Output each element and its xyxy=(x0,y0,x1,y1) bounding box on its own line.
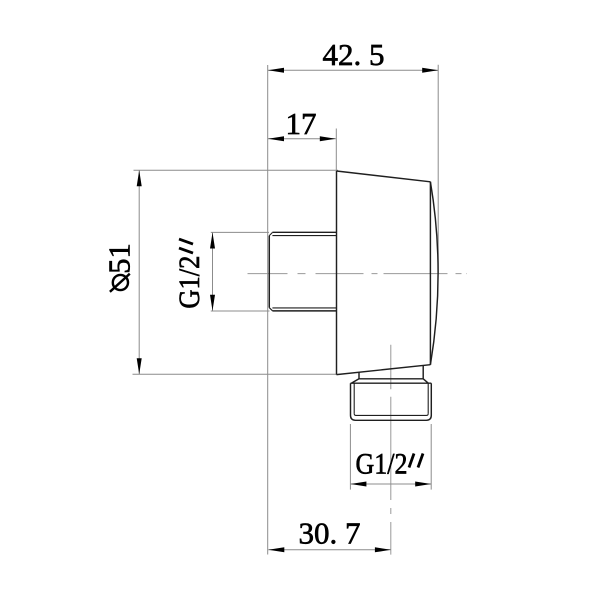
svg-text:51: 51 xyxy=(103,243,137,274)
svg-text:G1/2: G1/2 xyxy=(173,256,206,309)
svg-text:42. 5: 42. 5 xyxy=(323,37,385,72)
svg-text:30. 7: 30. 7 xyxy=(299,516,361,551)
svg-text:G1/2: G1/2 xyxy=(356,448,408,481)
svg-text:17: 17 xyxy=(286,106,317,141)
